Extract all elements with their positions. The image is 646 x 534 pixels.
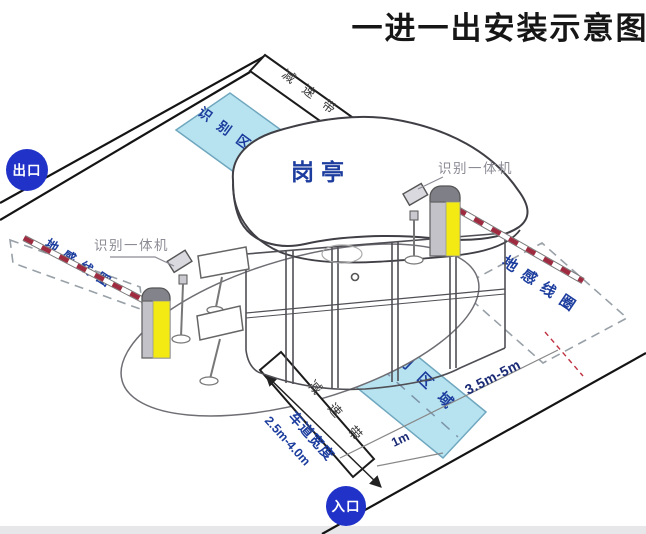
- barrier-right-yellow-panel: [446, 202, 460, 256]
- entrance-badge: 入口: [326, 486, 366, 526]
- camera-right-base: [405, 256, 423, 264]
- barrier-left-yellow-panel: [153, 301, 170, 358]
- installation-diagram-page: 地感线圈 地感线圈 识别区域 识别区域 减速带 减速带 车道宽度 2.5m-4.…: [0, 0, 646, 534]
- booth-label: 岗亭: [291, 159, 351, 185]
- sign-b-base: [200, 377, 218, 385]
- entrance-badge-label: 入口: [332, 499, 361, 514]
- installation-diagram: 地感线圈 地感线圈 识别区域 识别区域 减速带 减速带 车道宽度 2.5m-4.…: [0, 0, 646, 534]
- diagram-title: 一进一出安装示意图: [352, 11, 646, 46]
- camera-left-mount: [179, 275, 187, 284]
- reader-left-label: 识别一体机: [94, 238, 169, 253]
- exit-badge: 出口: [6, 149, 48, 191]
- camera-left-base: [172, 335, 190, 343]
- exit-badge-label: 出口: [13, 162, 42, 178]
- reader-right-label: 识别一体机: [438, 161, 513, 176]
- camera-right-mount: [410, 211, 418, 220]
